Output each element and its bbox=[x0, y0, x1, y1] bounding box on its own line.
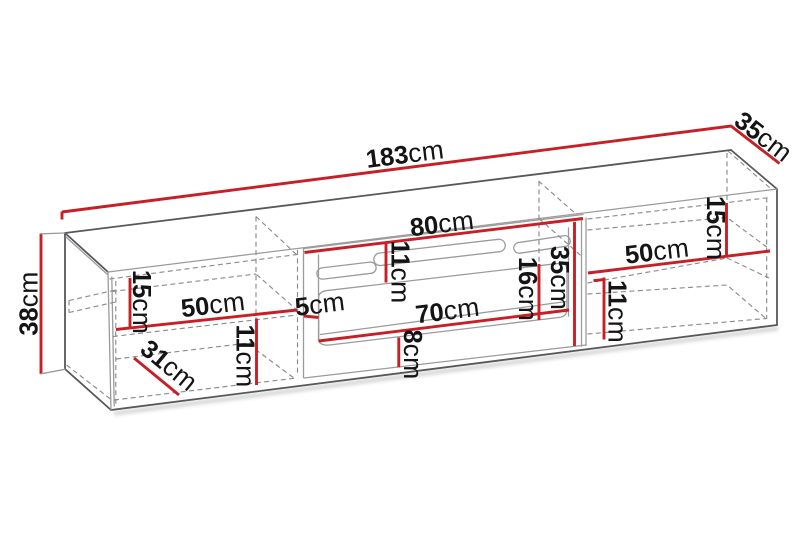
svg-text:11cm: 11cm bbox=[603, 280, 633, 343]
svg-text:35cm: 35cm bbox=[545, 246, 575, 310]
svg-text:15cm: 15cm bbox=[701, 196, 731, 260]
svg-text:11cm: 11cm bbox=[386, 241, 416, 304]
svg-text:8cm: 8cm bbox=[398, 329, 428, 379]
svg-text:15cm: 15cm bbox=[127, 270, 157, 334]
svg-text:16cm: 16cm bbox=[513, 257, 543, 321]
svg-text:11cm: 11cm bbox=[231, 325, 261, 388]
svg-text:38cm: 38cm bbox=[14, 271, 44, 335]
